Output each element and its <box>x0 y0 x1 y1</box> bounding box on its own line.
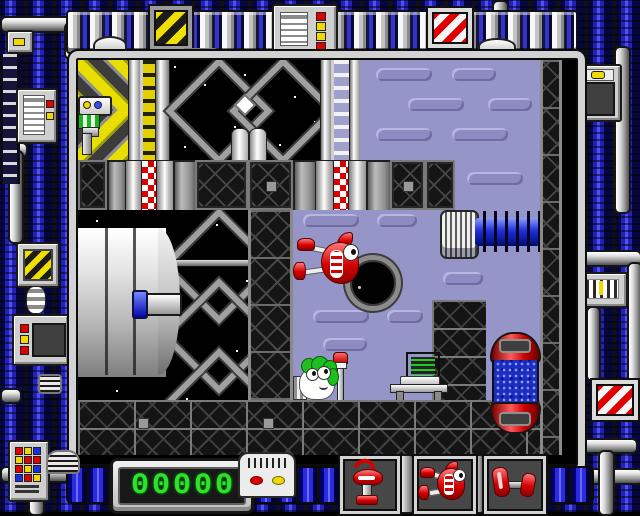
space-region <box>78 210 248 400</box>
piston-column <box>315 160 335 212</box>
yellow-button[interactable] <box>591 71 605 79</box>
plunger-bird[interactable] <box>293 232 363 288</box>
tool-slot-plunger-bird[interactable] <box>414 456 476 514</box>
striped-monitor <box>16 242 60 288</box>
control-panel <box>272 4 338 54</box>
right-dark-column <box>540 60 562 455</box>
bird-plunger-foot <box>293 262 306 280</box>
robot-base <box>356 495 378 505</box>
red-button[interactable] <box>24 474 32 482</box>
capsule-window <box>499 339 531 353</box>
machine-eye <box>94 101 102 109</box>
document-icon <box>280 12 308 46</box>
face-panel <box>238 452 296 498</box>
wall-bump <box>452 128 508 141</box>
wall-bump <box>303 214 359 227</box>
antenna-rod <box>172 259 248 267</box>
wall-bump <box>376 68 432 81</box>
slot-panel <box>6 30 34 54</box>
score-readout: 0 0 0 0 0 <box>118 467 246 505</box>
console-doc-panel <box>16 88 58 144</box>
wall-bump <box>408 98 464 111</box>
purple-wall <box>455 160 540 210</box>
dumbbell-weight <box>519 472 537 498</box>
document-icon <box>23 95 45 135</box>
cylinder-seam <box>105 228 108 375</box>
warning-stripes-sign-bottom <box>592 380 638 420</box>
pipe-segment <box>586 306 601 382</box>
red-button[interactable] <box>20 324 29 333</box>
floor-blocks <box>78 400 540 455</box>
red-button[interactable] <box>316 42 326 51</box>
red-button[interactable] <box>15 465 23 473</box>
yellow-button[interactable] <box>24 447 32 455</box>
tool-slot-drill-robot[interactable] <box>340 456 400 514</box>
bird-plunger-foot <box>297 238 315 251</box>
wall-bump <box>377 214 417 227</box>
red-button[interactable] <box>20 346 29 355</box>
bird-plunger-foot <box>418 485 429 500</box>
red-button[interactable] <box>33 456 41 464</box>
console-screen-panel <box>12 314 70 366</box>
score-digit: 0 <box>173 470 191 502</box>
dark-block-square <box>390 160 425 210</box>
red-eye-light <box>250 476 263 485</box>
score-digit: 0 <box>215 470 233 502</box>
piston-column <box>348 160 368 212</box>
piston-block <box>293 160 390 210</box>
monitor-neck <box>26 286 46 314</box>
stars <box>174 66 176 68</box>
red-button[interactable] <box>24 456 32 464</box>
capsule-tank[interactable] <box>490 332 537 430</box>
computer-desk <box>390 352 446 400</box>
block-accent <box>266 181 277 192</box>
console-screen <box>32 323 66 357</box>
gremlin-pupil <box>312 371 316 376</box>
tool-slot-dumbbell[interactable] <box>484 456 546 514</box>
vent-grille <box>46 450 80 474</box>
barcode-panel <box>578 272 628 308</box>
yellow-eye-light <box>272 476 285 485</box>
yellow-button[interactable] <box>316 32 326 41</box>
probe-blue-cap <box>132 290 148 319</box>
twin-cylinder <box>231 128 249 162</box>
pipe-down <box>82 133 92 155</box>
playfield[interactable] <box>78 60 562 455</box>
score-digit: 0 <box>194 470 212 502</box>
capsule-window <box>499 412 531 426</box>
wall-bump <box>313 310 369 323</box>
red-button[interactable] <box>15 447 23 455</box>
dark-column <box>248 210 293 400</box>
capsule-liquid <box>492 360 539 402</box>
yellow-button[interactable] <box>24 465 32 473</box>
stars <box>96 220 98 222</box>
wall-bump <box>443 272 483 285</box>
yellow-button[interactable] <box>33 474 41 482</box>
wall-bump <box>376 128 432 141</box>
wall-bump <box>452 68 496 81</box>
purple-wall <box>360 60 540 160</box>
yellow-button[interactable] <box>46 112 54 120</box>
block-accent <box>403 181 414 192</box>
table-leg <box>396 391 404 400</box>
twin-cylinder <box>249 128 267 162</box>
score-display: 0 0 0 0 0 <box>110 458 254 514</box>
striped-screen <box>23 249 53 281</box>
wall-bump <box>387 310 423 323</box>
block-accent <box>138 418 149 429</box>
wall-bump <box>488 98 532 111</box>
yellow-button[interactable] <box>316 22 326 31</box>
peek-machine <box>78 93 112 155</box>
score-digit: 0 <box>131 470 149 502</box>
rocket-cylinder <box>78 228 180 375</box>
ribbed-barrel <box>440 210 479 259</box>
wall-bump <box>467 172 523 185</box>
green-gremlin[interactable] <box>293 356 341 400</box>
red-button[interactable] <box>316 12 326 21</box>
dark-block <box>78 160 107 210</box>
dark-block-square <box>248 160 293 210</box>
bird-pupil <box>351 249 356 255</box>
machine-eye <box>83 101 91 109</box>
wall-bump <box>323 338 367 351</box>
probe-barrel <box>144 293 182 316</box>
yellow-button[interactable] <box>20 335 29 344</box>
bird-stripe <box>330 250 343 278</box>
bird-pupil <box>459 473 463 478</box>
yellow-slot <box>13 38 25 46</box>
bird-plunger-foot <box>420 467 435 478</box>
gremlin-pupil <box>324 369 328 374</box>
yellow-button[interactable] <box>15 456 23 464</box>
blue-button[interactable] <box>33 465 41 473</box>
game-screen: 0 0 0 0 0 <box>0 0 640 512</box>
block-accent <box>263 418 274 429</box>
score-digit: 0 <box>152 470 170 502</box>
robot-mouth-stripe <box>358 476 375 480</box>
panel-line <box>15 485 39 488</box>
monitor-screen <box>583 82 615 116</box>
hazard-yellow-sign <box>150 6 192 50</box>
dark-block <box>425 160 455 210</box>
pipe-segment <box>598 450 615 516</box>
piston-block <box>107 160 195 210</box>
pipe-segment <box>0 388 22 404</box>
blue-button[interactable] <box>33 447 41 455</box>
table-leg <box>434 391 442 400</box>
dark-block <box>195 160 248 210</box>
panel-line <box>15 490 39 493</box>
vent-grille <box>38 374 62 394</box>
yellow-mark <box>599 281 603 295</box>
face-slats <box>248 458 286 468</box>
red-button[interactable] <box>46 100 54 108</box>
coil-rings <box>475 211 540 252</box>
warning-stripes-sign-top <box>428 8 472 48</box>
blue-button[interactable] <box>15 474 23 482</box>
gremlin-smile <box>319 383 328 390</box>
button-grid-panel <box>8 440 50 502</box>
